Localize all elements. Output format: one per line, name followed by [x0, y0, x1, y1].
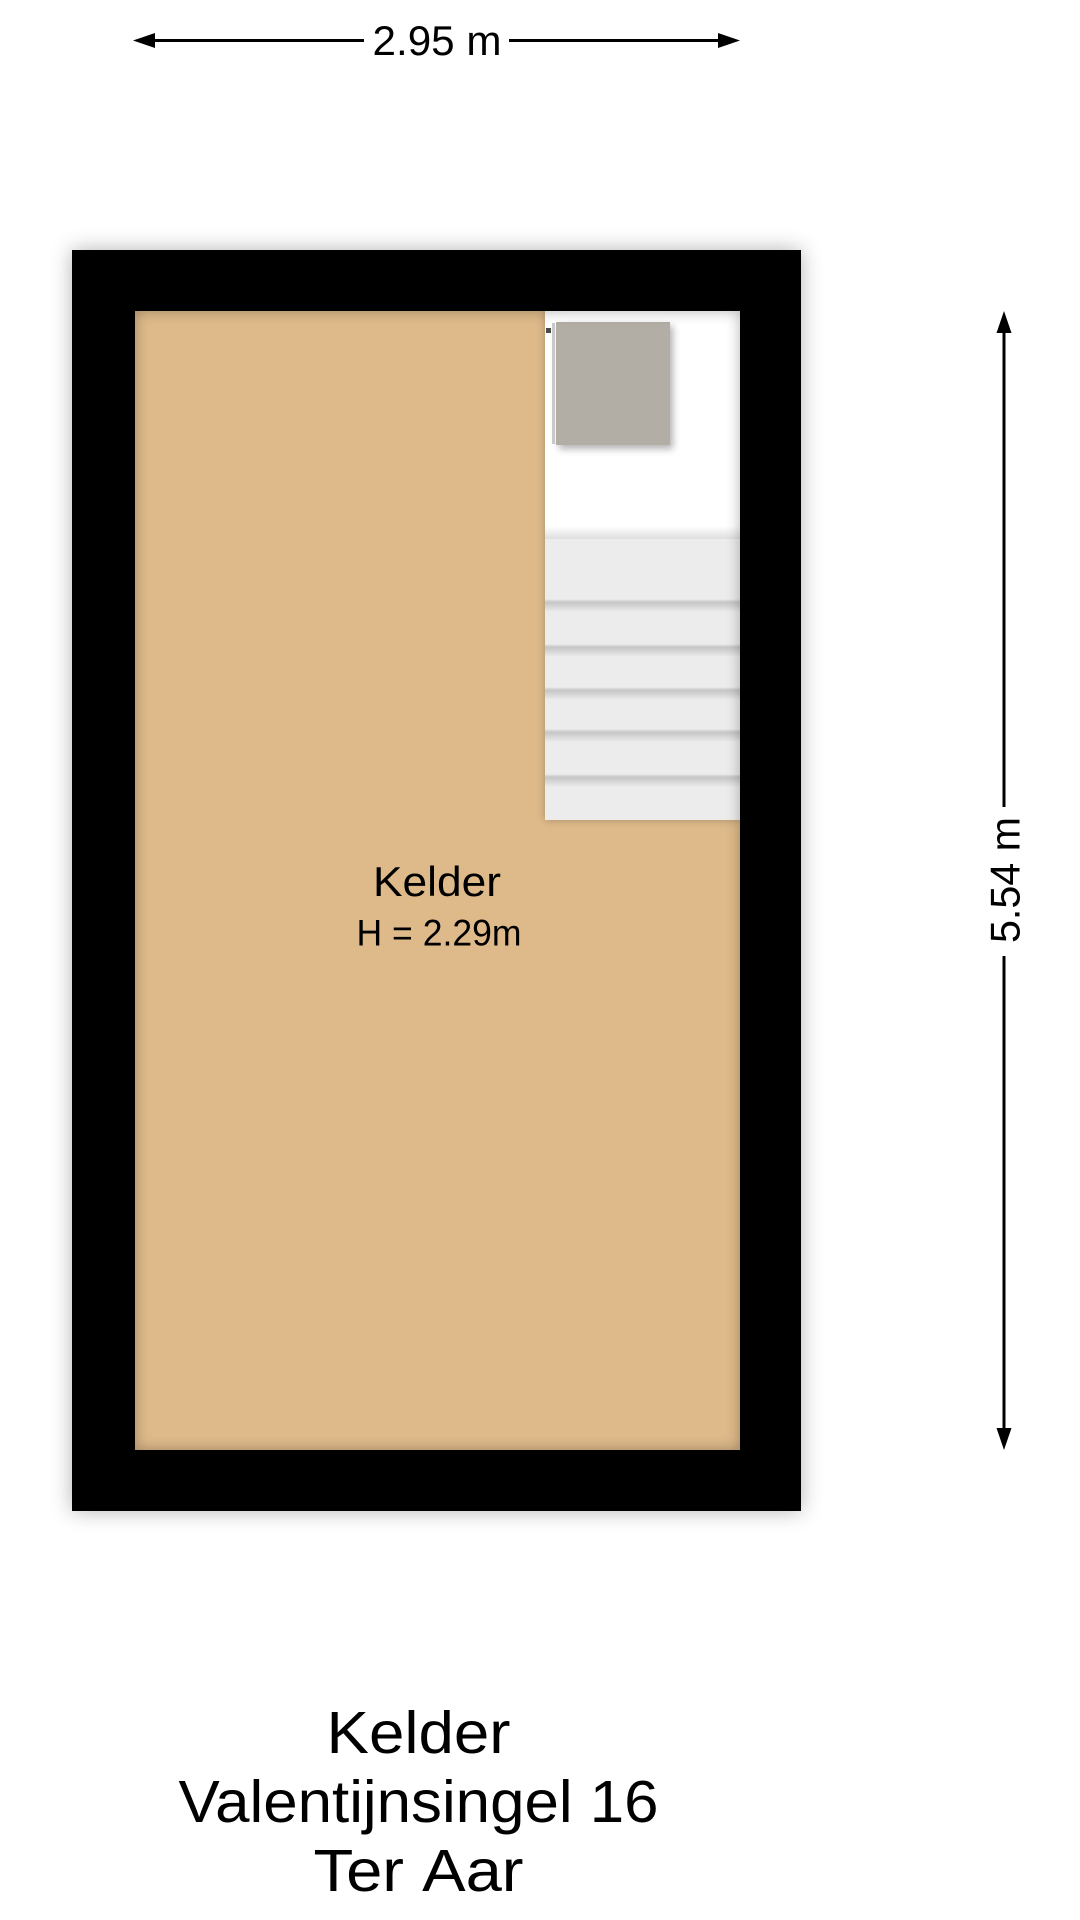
- svg-text:Ter Aar: Ter Aar: [314, 1837, 524, 1904]
- svg-text:2.95 m: 2.95 m: [373, 17, 502, 64]
- svg-text:H = 2.29m: H = 2.29m: [357, 912, 522, 954]
- svg-text:Kelder: Kelder: [373, 858, 501, 905]
- svg-text:Kelder: Kelder: [327, 1699, 511, 1766]
- svg-text:5.54 m: 5.54 m: [982, 817, 1029, 943]
- svg-text:Valentijnsingel 16: Valentijnsingel 16: [179, 1768, 659, 1835]
